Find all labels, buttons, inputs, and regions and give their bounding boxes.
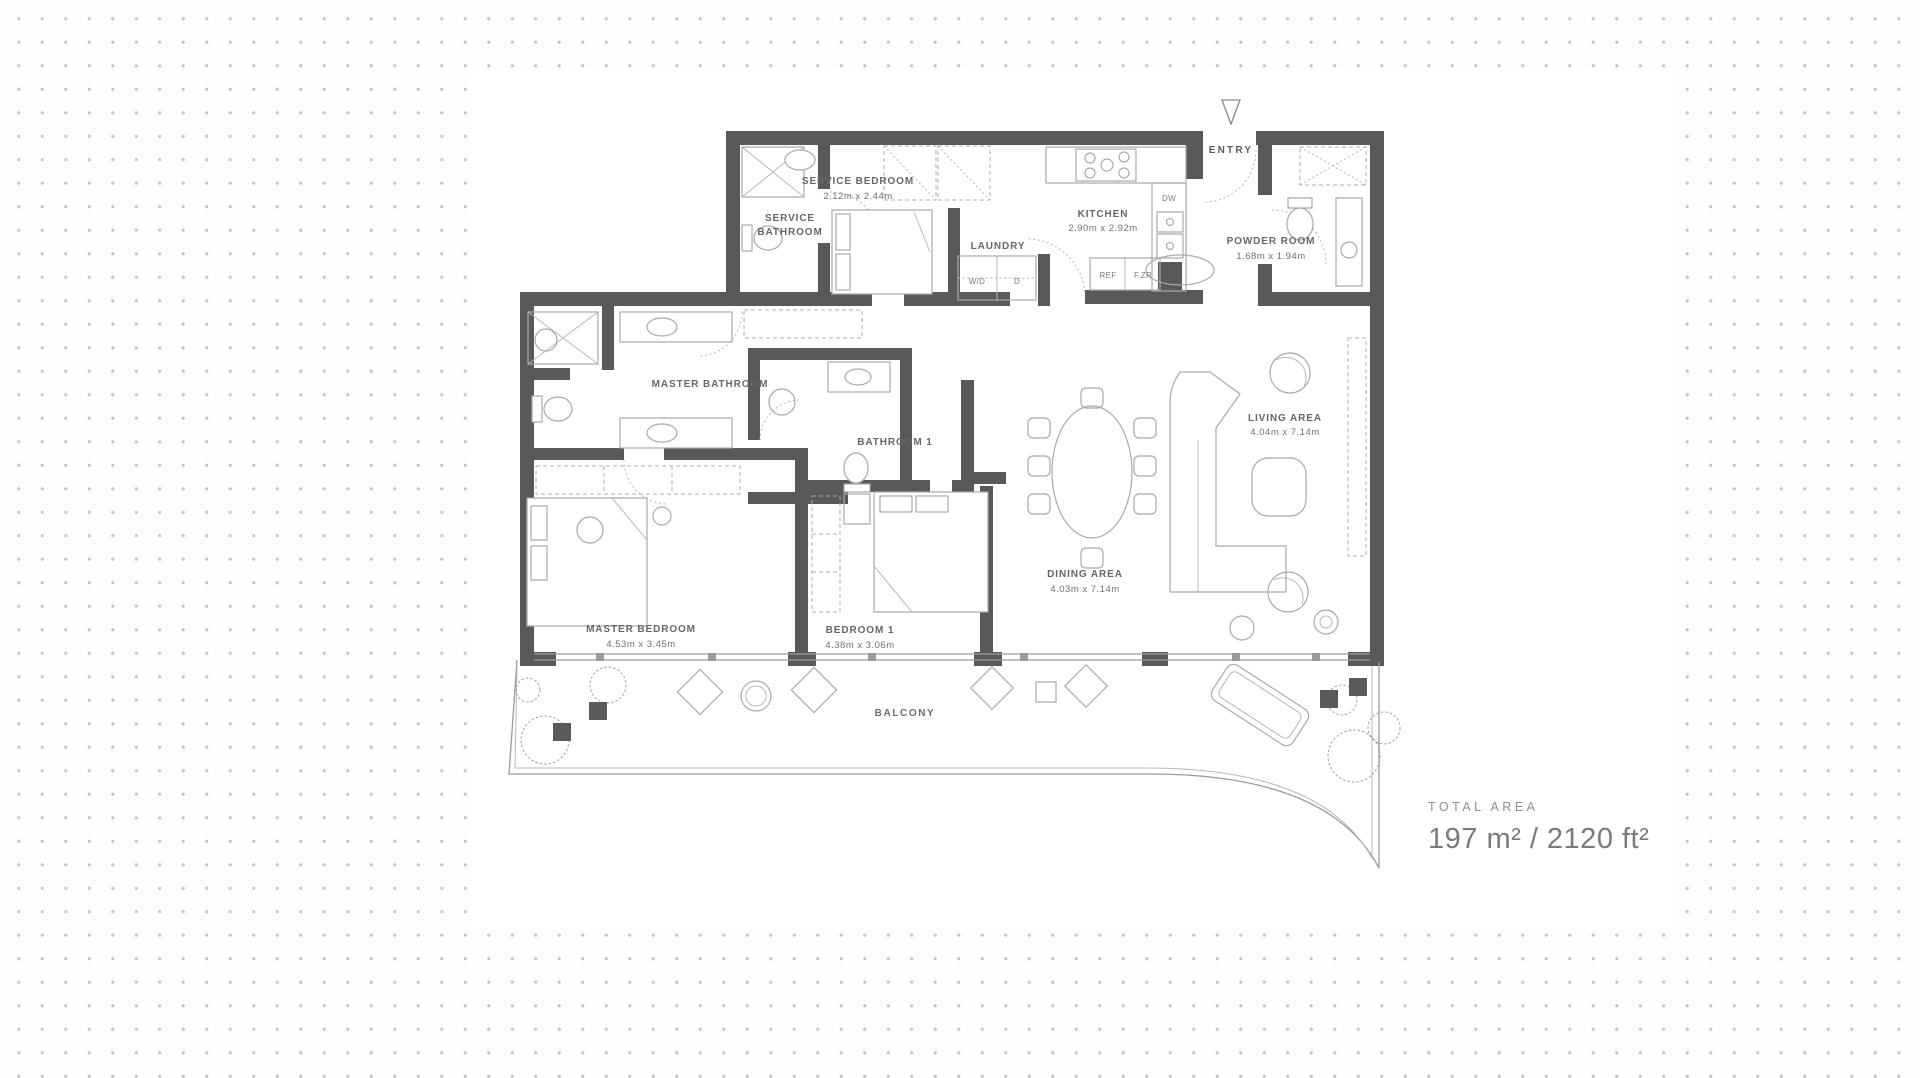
label-bedroom-1-dims: 4.38m x 3.06m	[825, 640, 894, 651]
label-bedroom-1: BEDROOM 1	[826, 625, 895, 636]
balcony-glazing	[534, 653, 1370, 661]
label-powder-room: POWDER ROOM	[1227, 236, 1316, 247]
floor-plan-page: ENTRY SERVICE BEDROOM 2.12m x 2.44m SERV…	[0, 0, 1920, 1078]
label-fridge: REF	[1100, 271, 1117, 280]
total-area-block: TOTAL AREA 197 m² / 2120 ft²	[1428, 800, 1649, 856]
label-master-bathroom: MASTER BATHROOM	[652, 379, 769, 390]
master-bedroom-furniture	[527, 466, 740, 626]
label-kitchen: KITCHEN	[1078, 209, 1129, 220]
label-service-bedroom: SERVICE BEDROOM	[802, 176, 914, 187]
label-master-bedroom: MASTER BEDROOM	[586, 624, 696, 635]
label-dishwasher: DW	[1162, 194, 1176, 203]
powder-room-fixtures	[1287, 147, 1366, 286]
label-dining-area: DINING AREA	[1047, 569, 1123, 580]
label-washer-dryer: W/D	[969, 277, 985, 286]
label-master-bedroom-dims: 4.53m x 3.45m	[606, 639, 675, 650]
label-dining-area-dims: 4.03m x 7.14m	[1050, 584, 1119, 595]
living-furniture	[1170, 338, 1366, 640]
label-service-bathroom-line2: BATHROOM	[757, 227, 822, 238]
label-dryer: D	[1014, 277, 1020, 286]
label-service-bedroom-dims: 2.12m x 2.44m	[823, 191, 892, 202]
label-balcony: BALCONY	[875, 708, 936, 719]
label-powder-room-dims: 1.68m x 1.94m	[1236, 251, 1305, 262]
bathroom-1-fixtures	[769, 362, 890, 492]
label-bathroom-1: BATHROOM 1	[857, 437, 932, 448]
label-entry: ENTRY	[1209, 145, 1254, 156]
label-living-area-dims: 4.04m x 7.14m	[1250, 427, 1319, 438]
label-living-area: LIVING AREA	[1248, 413, 1322, 424]
entry-arrow-icon	[1222, 100, 1240, 124]
dining-furniture	[1028, 388, 1156, 568]
balcony	[509, 660, 1400, 868]
label-laundry: LAUNDRY	[971, 241, 1026, 252]
bedroom-1-furniture	[812, 492, 988, 612]
total-area-label: TOTAL AREA	[1428, 800, 1649, 814]
label-kitchen-dims: 2.90m x 2.92m	[1068, 223, 1137, 234]
service-bedroom-fixtures	[832, 146, 990, 294]
total-area-value: 197 m² / 2120 ft²	[1428, 823, 1649, 856]
floor-plan-svg: ENTRY SERVICE BEDROOM 2.12m x 2.44m SERV…	[0, 0, 1920, 1078]
label-freezer: F.ZR	[1134, 271, 1152, 280]
label-service-bathroom-line1: SERVICE	[765, 213, 815, 224]
